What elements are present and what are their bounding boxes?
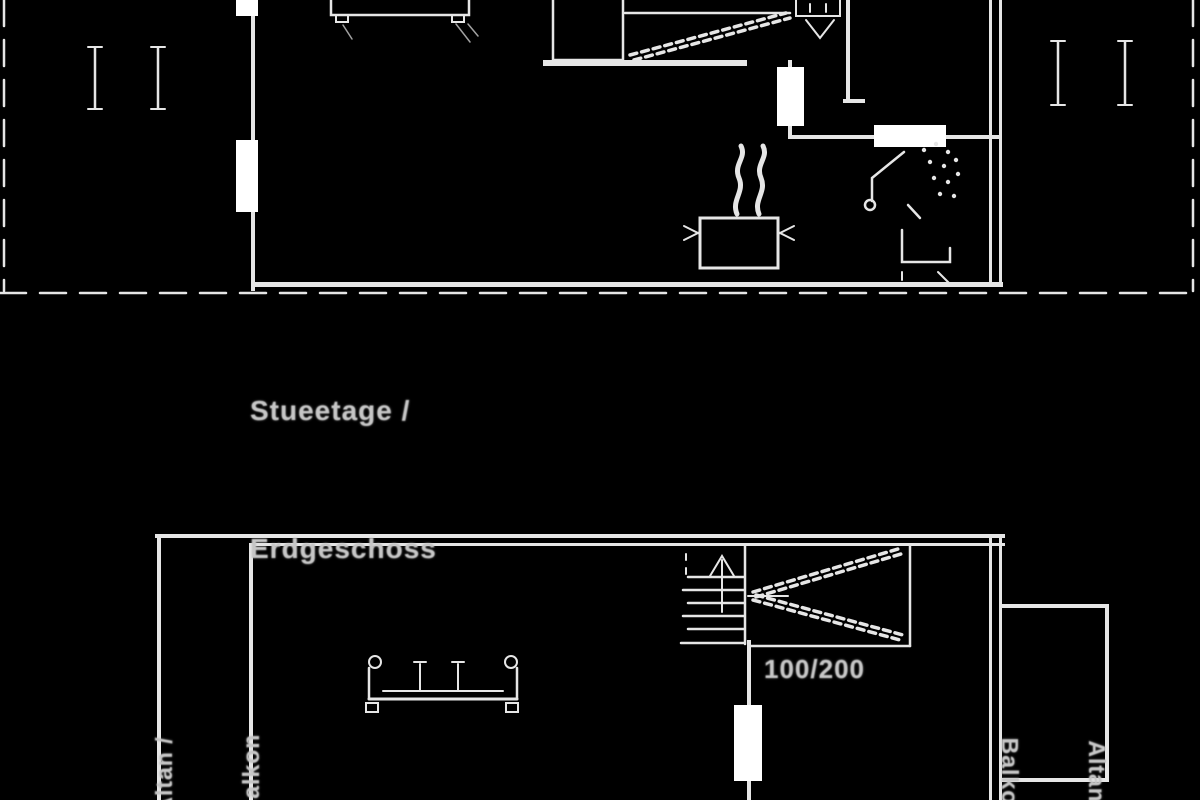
staircase-icon xyxy=(630,13,790,60)
upper-openings xyxy=(236,0,946,212)
window-icon xyxy=(151,47,165,109)
door-opening xyxy=(236,0,258,16)
floorplan-page: Stueetage / Erdgeschoss Altan / Balkon A… xyxy=(0,0,1200,800)
upper-floor-label-german: Erdgeschoss xyxy=(250,526,437,572)
right-balcony-label-danish: Altan / xyxy=(1082,719,1111,800)
closet xyxy=(553,0,623,60)
door-opening xyxy=(777,67,804,126)
left-balcony-label: Altan / Balkon xyxy=(92,715,324,800)
right-balcony-label-german: Balkon xyxy=(995,719,1024,800)
toilet-icon xyxy=(796,0,840,38)
upper-outline-dashed xyxy=(0,0,1193,293)
bed-size-label: 100/200 xyxy=(764,654,865,685)
window-icon xyxy=(88,47,102,109)
sofa-icon xyxy=(331,0,478,42)
sofa-icon xyxy=(366,656,518,712)
shower-icon xyxy=(865,142,960,218)
stove-pot-icon xyxy=(684,146,794,268)
window-icon xyxy=(1051,41,1065,105)
upper-floorplan xyxy=(0,0,1193,293)
right-balcony-label: Altan / Balkon xyxy=(937,719,1169,800)
door-opening xyxy=(236,140,258,212)
upper-floor-label-danish: Stueetage / xyxy=(250,388,437,434)
terrace-windows-left xyxy=(88,47,165,109)
left-balcony-label-german: Balkon xyxy=(237,715,266,800)
bath-fixture-icon xyxy=(902,230,950,284)
left-balcony-label-danish: Altan / xyxy=(150,715,179,800)
staircase-icon xyxy=(681,546,745,644)
floorplan-canvas xyxy=(0,0,1200,800)
door-opening xyxy=(734,705,762,781)
window-icon xyxy=(1118,41,1132,105)
terrace-windows-right xyxy=(1051,41,1132,105)
loft-bed-hatch xyxy=(748,546,910,646)
upper-floor-label: Stueetage / Erdgeschoss xyxy=(250,296,437,664)
steam-icon xyxy=(735,146,764,214)
